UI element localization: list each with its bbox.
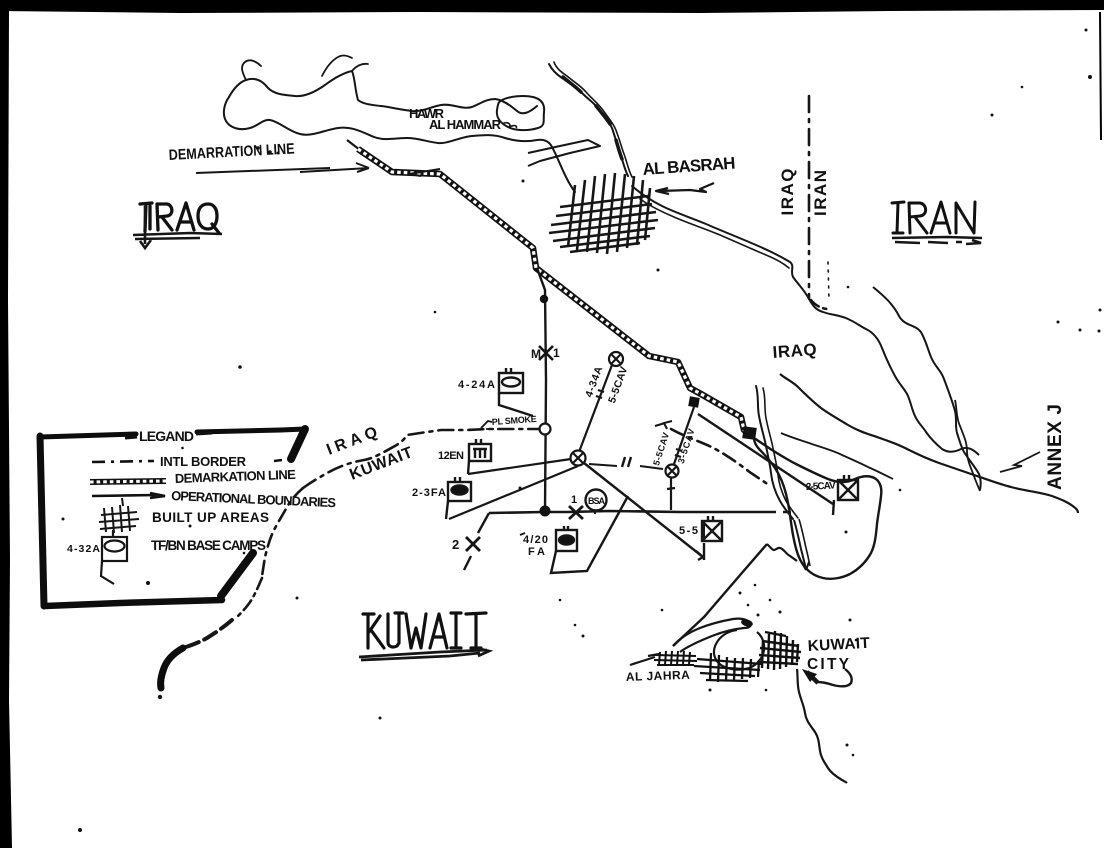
svg-text:AL HAMMAR: AL HAMMAR	[429, 117, 502, 132]
svg-text:AL JAHRA: AL JAHRA	[626, 668, 691, 684]
svg-text:BSA: BSA	[588, 496, 606, 506]
svg-text:2: 2	[452, 537, 459, 552]
svg-text:4-32A: 4-32A	[67, 543, 100, 555]
svg-text:ANNEX J: ANNEX J	[1045, 404, 1066, 490]
svg-text:2-3FA: 2-3FA	[412, 487, 446, 499]
svg-text:LEGAND: LEGAND	[139, 428, 194, 444]
svg-text:KUWAIT: KUWAIT	[807, 635, 870, 655]
svg-text:TF/BN BASE CAMPS: TF/BN BASE CAMPS	[151, 538, 266, 553]
svg-text:12EN: 12EN	[438, 450, 464, 462]
svg-text:CITY: CITY	[807, 656, 850, 673]
svg-text:INTL BORDER: INTL BORDER	[160, 454, 247, 469]
svg-text:1: 1	[571, 494, 577, 506]
svg-text:5-5: 5-5	[679, 525, 698, 537]
svg-text:4-24A: 4-24A	[458, 379, 495, 391]
svg-text:IRAQ: IRAQ	[778, 169, 797, 216]
svg-text:4/20: 4/20	[523, 534, 548, 546]
svg-text:IRAN: IRAN	[811, 170, 830, 216]
svg-text:1: 1	[553, 346, 560, 360]
svg-text:2-5CAV: 2-5CAV	[806, 480, 837, 493]
svg-text:IRAQ: IRAQ	[772, 340, 817, 362]
svg-text:FA: FA	[528, 546, 545, 558]
svg-text:BUILT UP AREAS: BUILT UP AREAS	[152, 510, 269, 525]
